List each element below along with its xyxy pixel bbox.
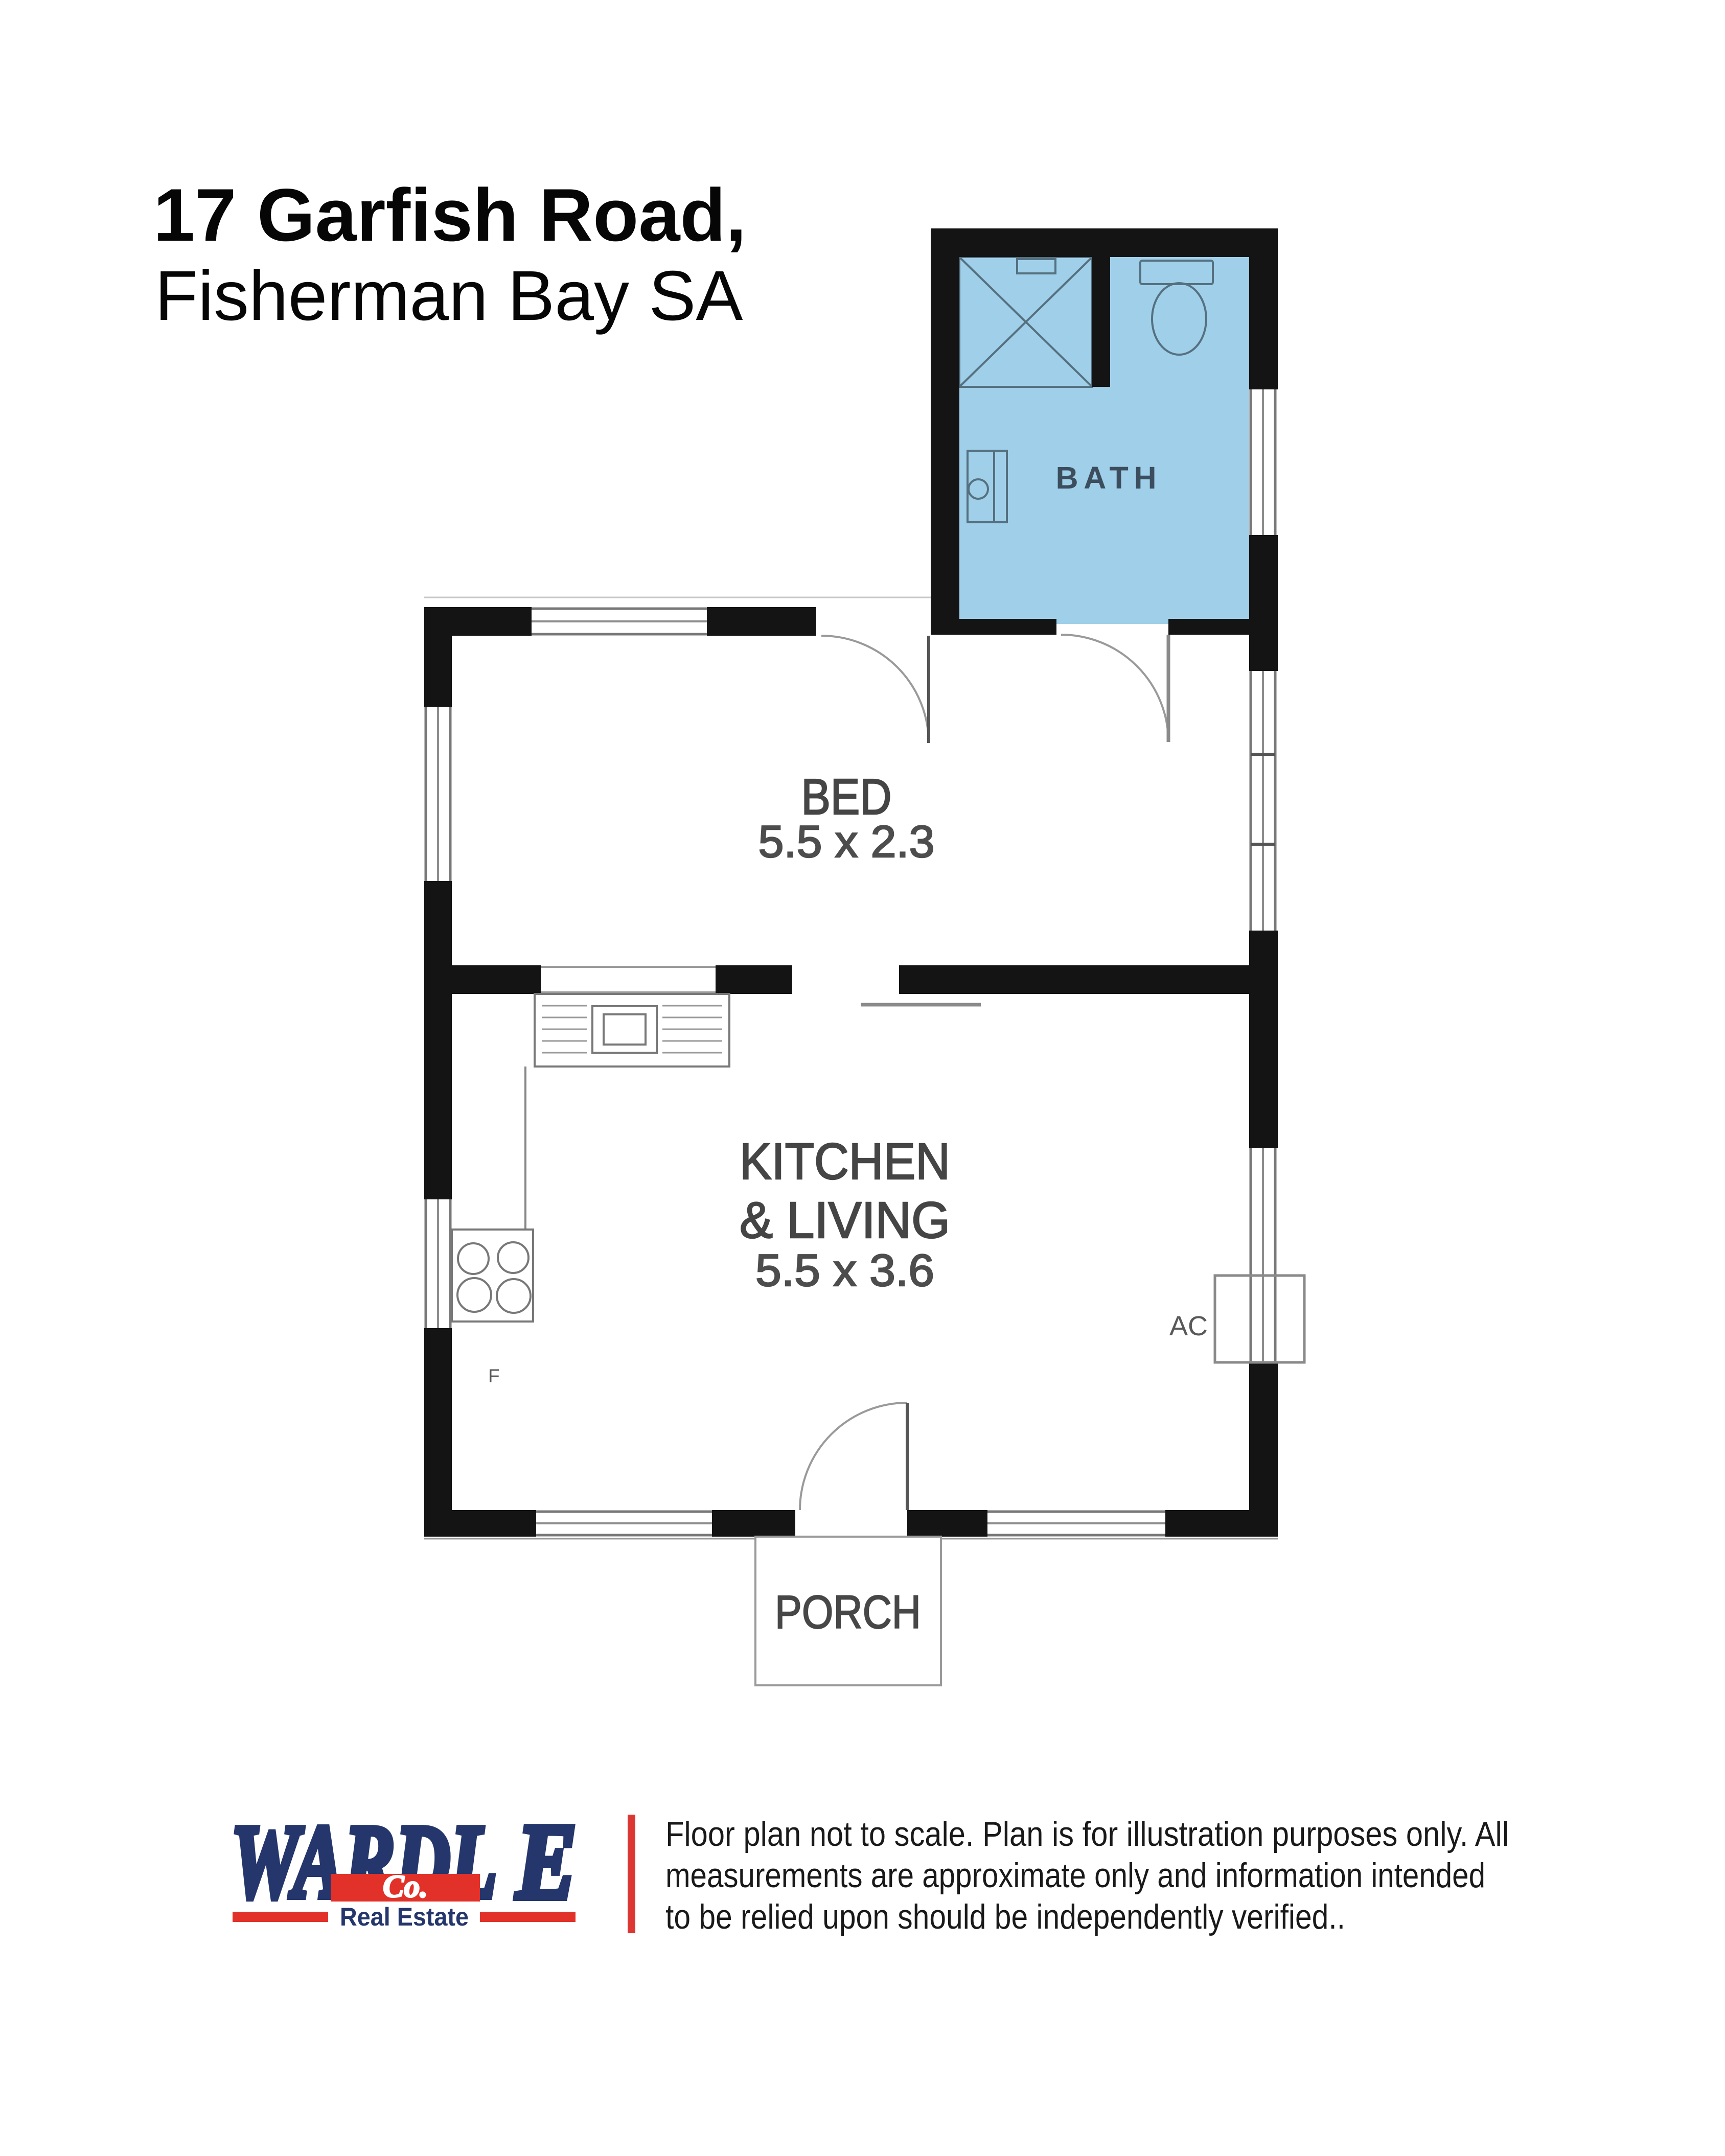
svg-text:& LIVING: & LIVING xyxy=(740,1192,950,1249)
svg-text:measurements are approximate o: measurements are approximate only and in… xyxy=(665,1856,1485,1895)
svg-text:AC: AC xyxy=(1169,1311,1208,1341)
svg-text:17 Garfish Road,: 17 Garfish Road, xyxy=(153,173,746,257)
svg-text:Fisherman Bay SA: Fisherman Bay SA xyxy=(155,257,743,335)
svg-text:KITCHEN: KITCHEN xyxy=(740,1133,950,1190)
svg-text:5.5 x 2.3: 5.5 x 2.3 xyxy=(758,816,935,867)
svg-text:F: F xyxy=(488,1365,500,1386)
svg-text:5.5 x 3.6: 5.5 x 3.6 xyxy=(755,1245,934,1295)
svg-text:to be relied upon should be in: to be relied upon should be independentl… xyxy=(665,1897,1345,1936)
svg-text:E: E xyxy=(515,1801,577,1921)
svg-text:Floor plan not to scale. Plan: Floor plan not to scale. Plan is for ill… xyxy=(665,1815,1509,1853)
svg-text:Co.: Co. xyxy=(383,1869,428,1904)
svg-text:Real Estate: Real Estate xyxy=(340,1903,469,1931)
svg-text:PORCH: PORCH xyxy=(775,1586,921,1638)
